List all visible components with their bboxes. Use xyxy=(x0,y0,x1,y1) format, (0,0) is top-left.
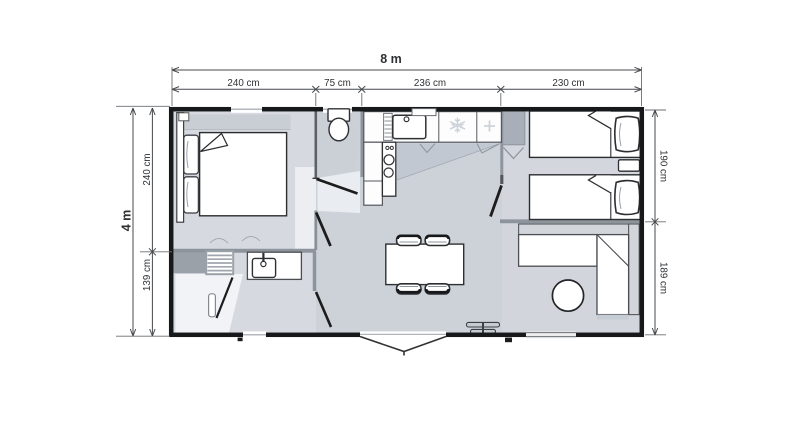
svg-text:240 cm: 240 cm xyxy=(227,78,259,89)
svg-text:230 cm: 230 cm xyxy=(552,78,584,89)
svg-text:190 cm: 190 cm xyxy=(658,150,669,182)
svg-text:240 cm: 240 cm xyxy=(142,153,153,185)
svg-text:4 m: 4 m xyxy=(120,210,134,232)
svg-text:236 cm: 236 cm xyxy=(414,78,446,89)
svg-text:75 cm: 75 cm xyxy=(324,78,351,89)
svg-text:189 cm: 189 cm xyxy=(658,262,669,294)
svg-text:139 cm: 139 cm xyxy=(142,259,153,291)
svg-text:8 m: 8 m xyxy=(380,52,402,66)
